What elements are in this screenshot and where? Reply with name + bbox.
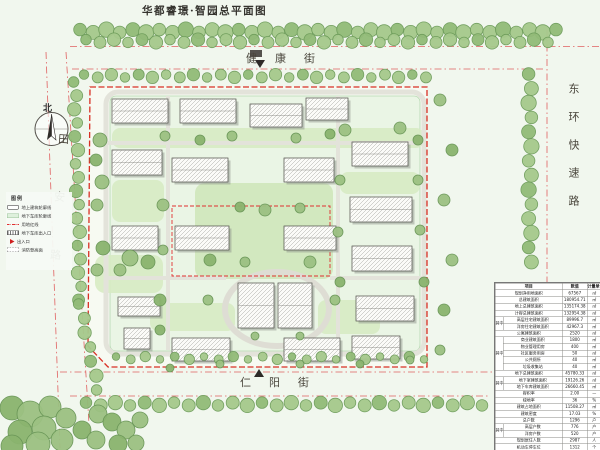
tree <box>51 429 73 450</box>
table-header-row: 项目数值计量单位 <box>495 283 600 290</box>
table-unit-cell: 户 <box>587 417 600 424</box>
legend-item-label: 地上建筑轮廓线 <box>22 204 52 210</box>
tree <box>76 281 87 292</box>
tree <box>401 36 414 49</box>
fire-lane-icon <box>7 248 19 253</box>
tree <box>79 70 89 80</box>
tree <box>128 435 144 450</box>
tree <box>376 353 384 361</box>
legend-item-label: 地下车库出入口 <box>22 230 52 236</box>
tree <box>372 395 386 409</box>
table-value-cell: 19126.26 <box>562 377 587 384</box>
tree <box>126 355 135 364</box>
tree <box>161 70 171 80</box>
tree <box>191 33 204 46</box>
tree <box>92 72 103 83</box>
tree <box>392 71 404 83</box>
tree <box>203 295 213 305</box>
tree <box>435 345 445 355</box>
tree <box>270 399 283 412</box>
tree <box>367 73 377 83</box>
tree <box>521 95 536 110</box>
tree <box>156 356 164 364</box>
tree <box>160 131 170 141</box>
tree <box>275 33 288 46</box>
building-outline-icon <box>7 205 19 210</box>
table-row: 洋房住宅建筑面积42967.3㎡ <box>495 323 600 330</box>
tree <box>240 398 254 412</box>
tree <box>416 398 430 412</box>
table-unit-cell: ㎡ <box>587 364 600 371</box>
legend-item-label: 出入口 <box>17 238 30 244</box>
table-value-cell: 17.03 <box>562 410 587 417</box>
table-unit-cell: ㎡ <box>587 404 600 411</box>
table-item-cell: 商业建筑面积 <box>503 337 562 344</box>
tree <box>154 294 166 306</box>
table-row: 公共厕所40㎡ <box>495 357 600 364</box>
tree <box>419 277 429 287</box>
tree <box>126 23 140 37</box>
table-row: 其中高层住宅建筑面积89996.7㎡ <box>495 317 600 324</box>
tree <box>178 22 193 37</box>
tree <box>212 400 224 412</box>
tree <box>339 124 351 136</box>
tree <box>87 431 105 449</box>
tree <box>120 73 130 83</box>
table-row: 建筑占地面积11508.27㎡ <box>495 404 600 411</box>
table-row: 建筑密度17.03% <box>495 410 600 417</box>
table-row: 其中商业建筑面积1800㎡ <box>495 337 600 344</box>
tree <box>413 135 423 145</box>
table-group-cell: 其中 <box>495 337 503 370</box>
table-row: 总户数1296户 <box>495 417 600 424</box>
tree <box>149 36 162 49</box>
tree <box>141 255 155 269</box>
tree <box>96 241 110 255</box>
table-row: 计容总建筑面积132954.38㎡ <box>495 310 600 317</box>
tree <box>68 77 79 88</box>
table-item-cell: 总建筑面积 <box>495 297 562 304</box>
street-label-top: 健康街 <box>246 50 333 66</box>
tree <box>73 225 86 238</box>
tree <box>300 400 312 412</box>
tree <box>351 68 363 80</box>
tree <box>259 204 271 216</box>
tree <box>249 34 260 45</box>
tree <box>325 129 335 139</box>
tree <box>152 398 166 412</box>
table-unit-cell: % <box>587 397 600 404</box>
tree <box>95 175 109 189</box>
tree <box>204 254 216 266</box>
tree <box>297 69 308 80</box>
tree <box>304 34 316 46</box>
table-value-cell: 2987 <box>562 437 587 444</box>
table-row: 垃圾收集站40㎡ <box>495 364 600 371</box>
site-plan-canvas: 华都睿璟·智园总平面图 北 健康街 仁阳街 田安路 东环快速路 图例 地上建筑轮… <box>0 0 600 450</box>
tree <box>522 155 535 168</box>
tree <box>338 72 349 83</box>
tree <box>304 256 316 268</box>
tree <box>107 33 120 46</box>
lawn <box>112 180 164 222</box>
table-unit-cell: ㎡ <box>587 297 600 304</box>
tree <box>344 397 356 409</box>
table-row: 其中高层户数776户 <box>495 424 600 431</box>
tree <box>256 72 267 83</box>
table-item-cell: 地下室建筑面积 <box>503 377 562 384</box>
tree <box>138 396 151 409</box>
table-group-cell: 其中 <box>495 377 503 390</box>
table-row: 公寓建筑面积2520㎡ <box>495 330 600 337</box>
table-unit-cell: ㎡ <box>587 350 600 357</box>
tree <box>114 264 126 276</box>
tree <box>85 355 97 367</box>
table-value-cell: 520 <box>562 431 587 438</box>
garage-entrance-icon <box>7 231 19 236</box>
legend: 图例 地上建筑轮廓线地下车库轮廓线用地红线地下车库出入口出入口消防登高面 <box>6 192 72 270</box>
tree <box>269 68 281 80</box>
tree <box>413 175 423 185</box>
tree <box>296 360 304 368</box>
tree <box>446 144 458 156</box>
table-header-cell: 数值 <box>562 283 587 290</box>
tree <box>402 396 415 409</box>
legend-item-fire-lane: 消防登高面 <box>6 246 72 255</box>
tree <box>91 264 103 276</box>
tree <box>187 68 199 80</box>
tree <box>346 36 358 48</box>
tree <box>525 111 538 124</box>
tree <box>94 36 106 48</box>
table-header-cell: 项目 <box>495 283 562 290</box>
tree <box>108 395 122 409</box>
tree <box>328 398 342 412</box>
tree <box>85 342 96 353</box>
tree <box>408 70 418 80</box>
tree <box>195 135 205 145</box>
table-item-cell: 垃圾收集站 <box>503 364 562 371</box>
table-item-cell: 物业管理用房 <box>503 344 562 351</box>
site-entrance-icon <box>10 239 15 244</box>
tree <box>406 356 414 364</box>
tree <box>476 400 488 412</box>
tree <box>258 352 267 361</box>
tree <box>166 364 174 372</box>
tree <box>158 245 168 255</box>
tree <box>226 396 239 409</box>
table-value-cell: 40 <box>562 357 587 364</box>
table-item-cell: 地上总建筑面积 <box>495 303 562 310</box>
tree <box>291 133 301 143</box>
table-group-cell: 其中 <box>495 424 503 437</box>
table-value-cell: 89996.7 <box>562 317 587 324</box>
table-unit-cell: 户 <box>587 424 600 431</box>
tree <box>333 227 343 237</box>
table-unit-cell: ㎡ <box>587 384 600 391</box>
tree <box>72 118 83 129</box>
tree <box>330 295 340 305</box>
tree <box>56 408 76 428</box>
garage-outline-icon <box>7 214 19 219</box>
table-unit-cell: 户 <box>587 431 600 438</box>
legend-item-label: 消防登高面 <box>22 247 43 253</box>
table-value-cell: 36 <box>562 397 587 404</box>
tree <box>70 159 81 170</box>
tree <box>178 36 190 48</box>
tree <box>220 34 232 46</box>
tree <box>438 304 450 316</box>
tree <box>420 356 428 364</box>
tree <box>380 69 391 80</box>
table-unit-cell: % <box>587 410 600 417</box>
tree <box>123 37 134 48</box>
tree <box>71 90 83 102</box>
table-row: 机动车停车位1312个 <box>495 444 600 450</box>
tree <box>312 23 325 36</box>
tree <box>288 353 296 361</box>
table-row: 地下总建筑面积45780.33㎡ <box>495 370 600 377</box>
lawn <box>340 172 420 194</box>
tree <box>524 225 539 240</box>
table-unit-cell: ㎡ <box>587 310 600 317</box>
tree <box>132 412 148 428</box>
tree <box>296 332 304 340</box>
tree <box>272 354 282 364</box>
tree <box>394 122 406 134</box>
tree <box>200 353 208 361</box>
table-value-cell: 2.00 <box>562 390 587 397</box>
tree <box>446 254 458 266</box>
table-unit-cell: ㎡ <box>587 303 600 310</box>
tree <box>80 397 92 409</box>
indicators-table: 项目数值计量单位规划净用地面积67567㎡总建筑面积180954.71㎡地上总建… <box>494 282 600 450</box>
tree <box>74 23 87 36</box>
tree <box>232 23 245 36</box>
tree <box>112 353 120 361</box>
tree <box>71 266 84 279</box>
tree <box>335 175 345 185</box>
table-item-cell: 洋房户数 <box>503 431 562 438</box>
tree <box>244 356 252 364</box>
tree <box>91 385 102 396</box>
table-value-cell: 776 <box>562 424 587 431</box>
tree <box>182 399 195 412</box>
tree <box>359 33 372 46</box>
tree <box>390 355 399 364</box>
tree <box>434 94 446 106</box>
tree <box>155 325 165 335</box>
tree <box>235 202 245 212</box>
table-row: 规划净用地面积67567㎡ <box>495 290 600 297</box>
tree <box>157 199 169 211</box>
table-row: 绿地率36% <box>495 397 600 404</box>
tree <box>356 360 364 368</box>
tree <box>81 34 92 45</box>
table-item-cell: 建筑密度 <box>495 410 562 417</box>
table-value-cell: 2520 <box>562 330 587 337</box>
tree <box>124 400 136 412</box>
tree <box>240 257 250 267</box>
tree <box>284 73 294 83</box>
table-value-cell: 1312 <box>562 444 587 450</box>
street-label-bottom: 仁阳街 <box>240 374 327 390</box>
table-row: 地上总建筑面积135174.38㎡ <box>495 303 600 310</box>
table-header-cell: 计量单位 <box>587 283 600 290</box>
tree <box>291 37 302 48</box>
tree <box>78 312 90 324</box>
tree <box>421 72 432 83</box>
tree <box>501 34 512 45</box>
table-value-cell: 400 <box>562 344 587 351</box>
tree <box>233 36 246 49</box>
table-item-cell: 容积率 <box>495 390 562 397</box>
street-label-right: 东环快速路 <box>565 83 581 223</box>
table-unit-cell: 个 <box>587 444 600 450</box>
tree <box>514 36 526 48</box>
table-unit-cell: ㎡ <box>587 337 600 344</box>
tree <box>72 240 83 251</box>
tree <box>90 154 102 166</box>
table-row: 规划居住人数2987人 <box>495 437 600 444</box>
table-unit-cell: ㎡ <box>587 290 600 297</box>
tree <box>375 37 386 48</box>
table-value-cell: 67567 <box>562 290 587 297</box>
table-item-cell: 总户数 <box>495 417 562 424</box>
table-row: 总建筑面积180954.71㎡ <box>495 297 600 304</box>
table-item-cell: 社区服务用房 <box>503 350 562 357</box>
tree <box>78 326 91 339</box>
table-item-cell: 公共厕所 <box>503 357 562 364</box>
tree <box>105 68 117 80</box>
tree <box>122 250 138 266</box>
tree <box>316 351 326 361</box>
red-property-line-icon <box>7 224 19 225</box>
table-unit-cell: ㎡ <box>587 317 600 324</box>
tree <box>472 34 484 46</box>
tree <box>524 82 538 96</box>
table-row: 物业管理用房400㎡ <box>495 344 600 351</box>
legend-title: 图例 <box>11 194 72 202</box>
tree <box>446 399 459 412</box>
table-item-cell: 高层住宅建筑面积 <box>503 317 562 324</box>
tree <box>136 34 148 46</box>
tree <box>146 71 158 83</box>
legend-item-building-outline: 地上建筑轮廓线 <box>6 203 72 212</box>
tree <box>317 36 330 49</box>
tree <box>314 396 327 409</box>
table-item-cell: 高层户数 <box>503 424 562 431</box>
tree <box>228 351 238 361</box>
table-row: 地下车库建筑面积26660.45㎡ <box>495 384 600 391</box>
tree <box>184 354 194 364</box>
table-unit-cell: ㎡ <box>587 323 600 330</box>
tree <box>346 352 355 361</box>
table-value-cell: 50 <box>562 350 587 357</box>
tree <box>332 356 340 364</box>
tree <box>205 23 219 37</box>
table-row: 其中地下室建筑面积19126.26㎡ <box>495 377 600 384</box>
table-row: 洋房户数520户 <box>495 431 600 438</box>
tree <box>168 397 180 409</box>
tree <box>196 395 210 409</box>
tree <box>432 397 444 409</box>
tree <box>522 212 536 226</box>
table-row: 社区服务用房50㎡ <box>495 350 600 357</box>
tree <box>133 69 144 80</box>
tree <box>165 34 176 45</box>
tree <box>153 23 166 36</box>
table-value-cell: 1296 <box>562 417 587 424</box>
table-item-cell: 公寓建筑面积 <box>495 330 562 337</box>
tree <box>524 139 539 154</box>
tree <box>358 399 371 412</box>
tree <box>202 73 212 83</box>
table-unit-cell: ㎡ <box>587 330 600 337</box>
table-item-cell: 机动车停车位 <box>495 444 562 450</box>
tree <box>227 131 237 141</box>
table-item-cell: 洋房住宅建筑面积 <box>503 323 562 330</box>
tree <box>388 400 400 412</box>
table-unit-cell: ㎡ <box>587 370 600 377</box>
legend-item-garage-entrance: 地下车库出入口 <box>6 229 72 238</box>
tree <box>215 69 226 80</box>
table-value-cell: 26660.45 <box>562 384 587 391</box>
tree <box>91 199 103 211</box>
tree <box>485 36 498 49</box>
tree <box>207 37 218 48</box>
tree <box>140 351 150 361</box>
table-row: 容积率2.00— <box>495 390 600 397</box>
tree <box>73 299 84 310</box>
table-item-cell: 计容总建筑面积 <box>495 310 562 317</box>
tree <box>415 225 425 235</box>
plan-title: 华都睿璟·智园总平面图 <box>142 3 267 18</box>
tree <box>295 203 305 213</box>
tree <box>243 70 253 80</box>
table-item-cell: 建筑占地面积 <box>495 404 562 411</box>
tree <box>325 70 335 80</box>
tree <box>257 22 272 37</box>
tree <box>521 182 536 197</box>
tree <box>216 360 224 368</box>
tree <box>262 36 274 48</box>
tree <box>310 71 322 83</box>
table-item-cell: 规划净用地面积 <box>495 290 562 297</box>
tree <box>443 33 456 46</box>
tree <box>333 34 344 45</box>
table-value-cell: 42967.3 <box>562 323 587 330</box>
tree <box>525 198 538 211</box>
tree <box>109 435 127 450</box>
table-value-cell: 45780.33 <box>562 370 587 377</box>
tree <box>68 103 81 116</box>
tree <box>430 36 442 48</box>
tree <box>524 168 538 182</box>
tree <box>74 199 85 210</box>
table-item-cell: 地下车库建筑面积 <box>503 384 562 391</box>
table-unit-cell: ㎡ <box>587 357 600 364</box>
table-value-cell: 135174.38 <box>562 303 587 310</box>
tree <box>251 332 259 340</box>
tree <box>93 133 107 147</box>
tree <box>417 34 428 45</box>
table-unit-cell: — <box>587 390 600 397</box>
tree <box>335 277 345 287</box>
tree <box>522 68 535 81</box>
tree <box>256 397 268 409</box>
table-unit-cell: ㎡ <box>587 344 600 351</box>
